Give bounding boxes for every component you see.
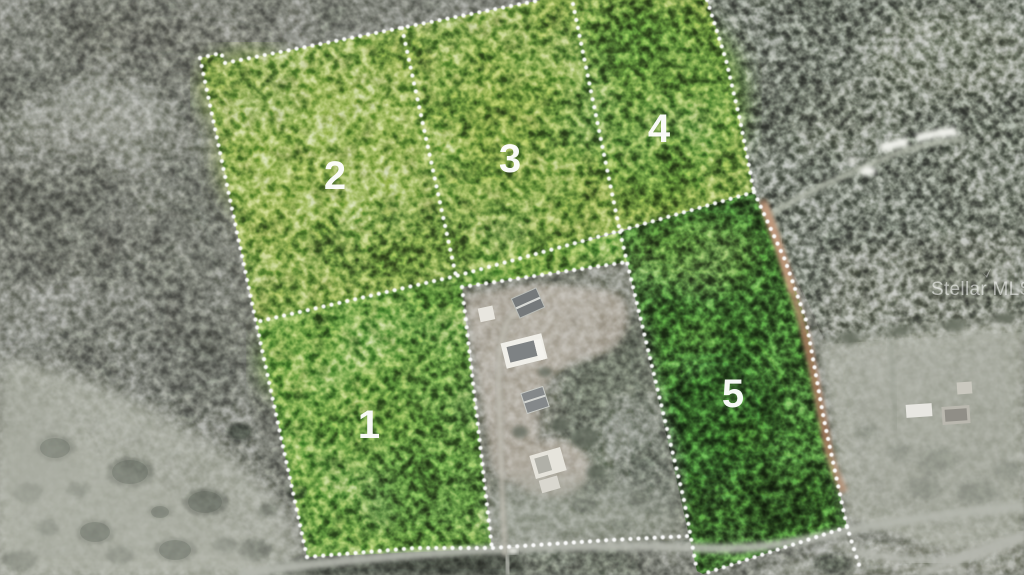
svg-text:4: 4 <box>648 107 671 151</box>
svg-text:Stellar MLS: Stellar MLS <box>931 279 1024 300</box>
svg-text:3: 3 <box>499 137 521 181</box>
svg-text:2: 2 <box>324 154 346 198</box>
svg-text:5: 5 <box>722 372 744 416</box>
svg-text:1: 1 <box>358 403 380 447</box>
